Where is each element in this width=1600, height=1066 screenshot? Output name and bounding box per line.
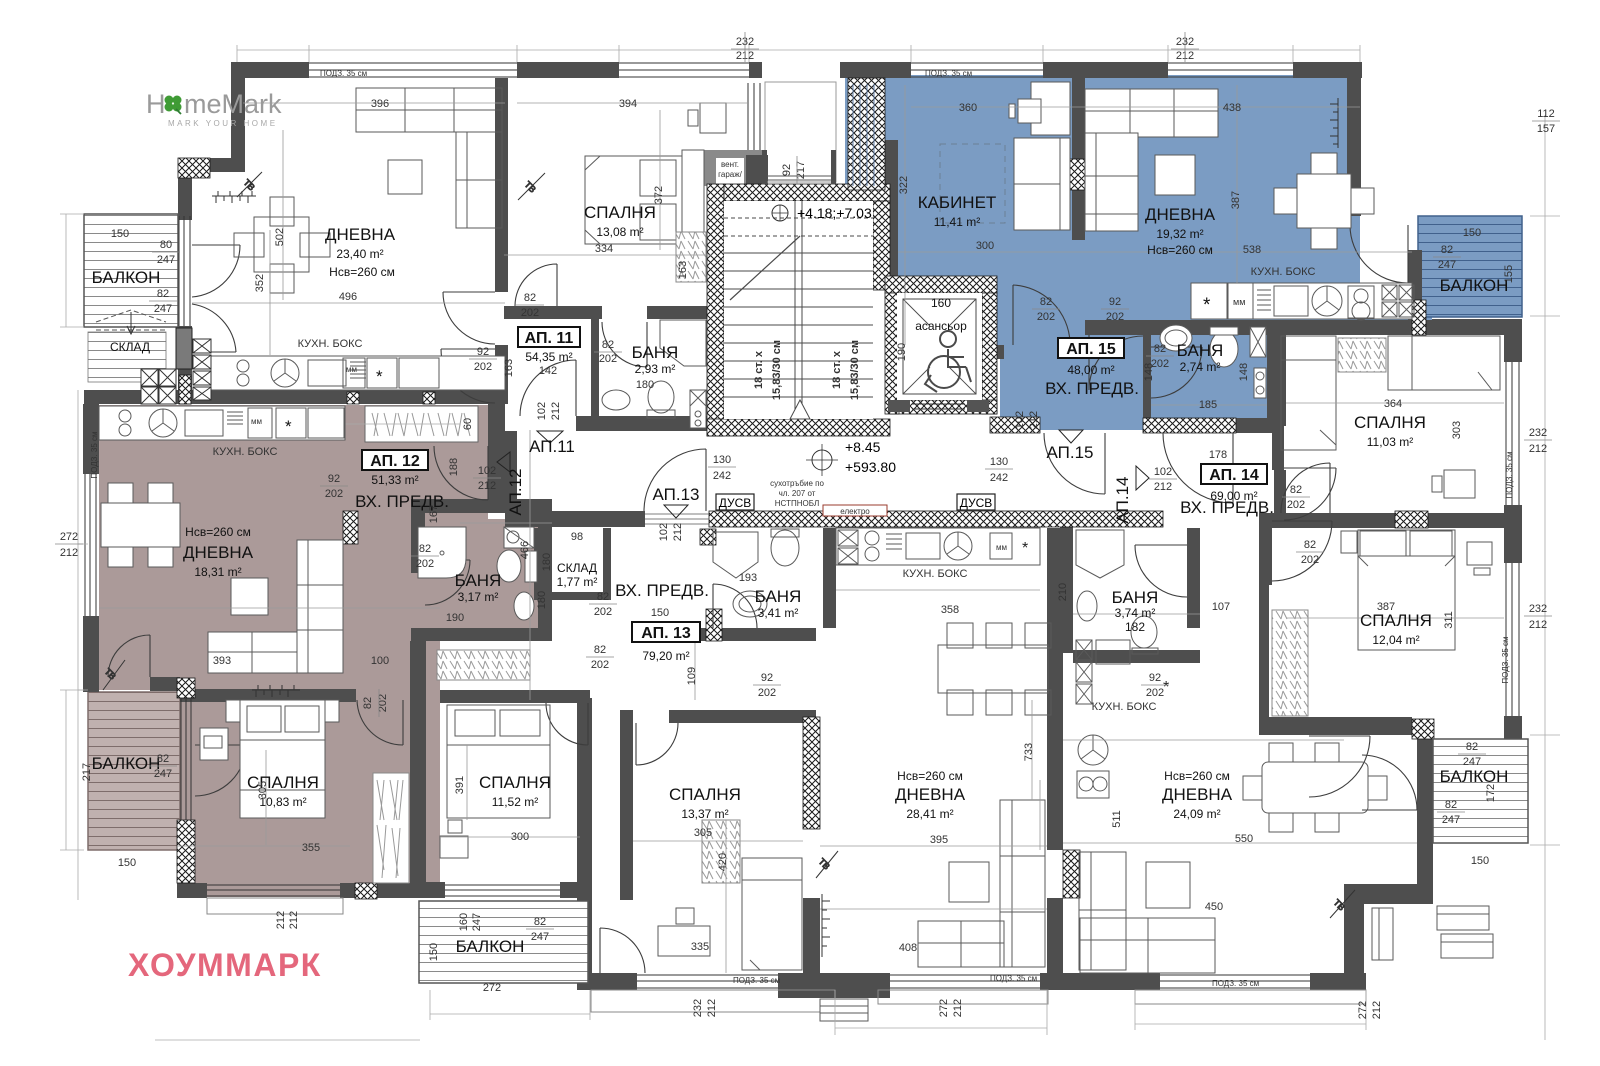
- svg-text:БАНЯ: БАНЯ: [632, 343, 679, 362]
- svg-text:13,08 m²: 13,08 m²: [596, 225, 643, 239]
- svg-text:18,31 m²: 18,31 m²: [194, 565, 241, 579]
- svg-text:109: 109: [686, 667, 698, 685]
- svg-text:АП.14: АП.14: [1113, 477, 1132, 524]
- svg-text:АП. 12: АП. 12: [370, 453, 420, 470]
- svg-text:466: 466: [519, 541, 531, 559]
- svg-text:мм: мм: [251, 417, 262, 426]
- svg-text:202: 202: [599, 353, 617, 365]
- svg-text:15,83/30 см: 15,83/30 см: [849, 340, 861, 400]
- svg-text:130: 130: [713, 454, 731, 466]
- svg-text:335: 335: [691, 941, 709, 953]
- svg-text:272: 272: [60, 531, 78, 543]
- svg-text:meMark: meMark: [184, 89, 282, 119]
- svg-text:247: 247: [1438, 259, 1456, 271]
- svg-text:150: 150: [1463, 227, 1481, 239]
- svg-text:3,41 m²: 3,41 m²: [758, 606, 799, 620]
- svg-text:247: 247: [1442, 814, 1460, 826]
- svg-text:92: 92: [761, 672, 773, 684]
- svg-text:182: 182: [1125, 620, 1145, 634]
- svg-text:242: 242: [990, 472, 1008, 484]
- svg-text:82: 82: [597, 591, 609, 603]
- svg-text:сухотръбие по: сухотръбие по: [770, 479, 824, 488]
- svg-text:450: 450: [1205, 901, 1223, 913]
- svg-text:193: 193: [739, 572, 757, 584]
- svg-text:438: 438: [1223, 102, 1241, 114]
- svg-text:18 ст. х: 18 ст. х: [831, 350, 843, 389]
- svg-text:202: 202: [758, 687, 776, 699]
- svg-text:190: 190: [896, 343, 908, 361]
- svg-text:322: 322: [898, 176, 910, 194]
- svg-text:СПАЛНЯ: СПАЛНЯ: [479, 773, 551, 792]
- svg-text:212: 212: [952, 999, 964, 1017]
- svg-text:502: 502: [274, 228, 286, 246]
- svg-text:185: 185: [1199, 399, 1217, 411]
- svg-text:212: 212: [1529, 443, 1547, 455]
- svg-text:мм: мм: [996, 543, 1007, 552]
- svg-text:150: 150: [651, 607, 669, 619]
- svg-text:ДНЕВНА: ДНЕВНА: [325, 225, 396, 244]
- svg-text:92: 92: [781, 164, 793, 176]
- svg-text:247: 247: [154, 303, 172, 315]
- svg-text:167: 167: [428, 505, 440, 523]
- svg-text:272: 272: [1357, 1001, 1369, 1019]
- svg-text:23,40 m²: 23,40 m²: [336, 247, 383, 261]
- svg-text:НСТПНОБЛ: НСТПНОБЛ: [775, 499, 819, 508]
- svg-text:82: 82: [1290, 484, 1302, 496]
- svg-text:ХОУММАРК: ХОУММАРК: [128, 947, 322, 983]
- svg-text:311: 311: [1443, 611, 1455, 629]
- svg-text:51,33 m²: 51,33 m²: [371, 473, 418, 487]
- svg-text:212: 212: [275, 911, 287, 929]
- svg-text:КУХН. БОКС: КУХН. БОКС: [213, 446, 278, 458]
- svg-text:212: 212: [288, 911, 300, 929]
- svg-text:202: 202: [325, 488, 343, 500]
- svg-text:202: 202: [1287, 499, 1305, 511]
- svg-text:150: 150: [118, 857, 136, 869]
- svg-text:107: 107: [1212, 601, 1230, 613]
- svg-text:електро: електро: [840, 507, 870, 516]
- svg-text:92: 92: [328, 473, 340, 485]
- svg-text:496: 496: [339, 291, 357, 303]
- svg-text:202: 202: [521, 307, 539, 319]
- svg-text:212: 212: [706, 999, 718, 1017]
- svg-text:172: 172: [1485, 784, 1497, 802]
- svg-text:82: 82: [362, 697, 374, 709]
- svg-text:82: 82: [419, 543, 431, 555]
- svg-text:82: 82: [594, 644, 606, 656]
- svg-text:355: 355: [302, 842, 320, 854]
- svg-text:387: 387: [1377, 601, 1395, 613]
- svg-text:202: 202: [591, 659, 609, 671]
- svg-text:142: 142: [539, 365, 557, 377]
- svg-text:79,20 m²: 79,20 m²: [642, 649, 689, 663]
- svg-text:538: 538: [1243, 244, 1261, 256]
- svg-text:393: 393: [213, 655, 231, 667]
- svg-text:СПАЛНЯ: СПАЛНЯ: [1354, 413, 1426, 432]
- svg-text:АП.15: АП.15: [1047, 443, 1094, 462]
- svg-text:155: 155: [1503, 265, 1515, 283]
- svg-text:АП.12: АП.12: [506, 469, 525, 516]
- svg-text:212: 212: [550, 402, 562, 420]
- svg-text:202: 202: [1146, 687, 1164, 699]
- svg-text:11,03 m²: 11,03 m²: [1367, 435, 1413, 449]
- svg-text:82: 82: [1441, 244, 1453, 256]
- svg-text:ПОДЗ. 35 см: ПОДЗ. 35 см: [990, 974, 1037, 983]
- svg-text:190: 190: [446, 612, 464, 624]
- svg-text:АП. 13: АП. 13: [641, 625, 691, 642]
- svg-text:БАЛКОН: БАЛКОН: [1440, 767, 1509, 786]
- svg-text:СКЛАД: СКЛАД: [110, 340, 150, 354]
- svg-text:82: 82: [602, 339, 614, 351]
- svg-text:202: 202: [1106, 311, 1124, 323]
- svg-text:+8.45: +8.45: [845, 439, 881, 455]
- svg-text:247: 247: [157, 254, 175, 266]
- svg-text:242: 242: [713, 470, 731, 482]
- svg-text:92: 92: [477, 346, 489, 358]
- svg-text:212: 212: [1371, 1001, 1383, 1019]
- svg-text:247: 247: [1463, 756, 1481, 768]
- svg-text:82: 82: [157, 753, 169, 765]
- svg-text:82: 82: [524, 292, 536, 304]
- svg-text:247: 247: [154, 768, 172, 780]
- svg-text:102: 102: [658, 523, 670, 541]
- svg-text:511: 511: [1111, 810, 1123, 828]
- svg-text:КАБИНЕТ: КАБИНЕТ: [918, 193, 997, 212]
- svg-text:202: 202: [416, 558, 434, 570]
- svg-text:ДУСВ: ДУСВ: [719, 496, 752, 510]
- svg-text:98: 98: [571, 531, 583, 543]
- svg-text:82: 82: [534, 916, 546, 928]
- svg-text:СПАЛНЯ: СПАЛНЯ: [584, 203, 656, 222]
- svg-text:СКЛАД: СКЛАД: [557, 561, 597, 575]
- svg-text:БАЛКОН: БАЛКОН: [92, 268, 161, 287]
- svg-text:82: 82: [1154, 343, 1166, 355]
- svg-text:КУХН. БОКС: КУХН. БОКС: [903, 568, 968, 580]
- svg-text:100: 100: [371, 655, 389, 667]
- svg-text:550: 550: [1235, 833, 1253, 845]
- svg-text:217: 217: [81, 763, 93, 781]
- svg-text:358: 358: [941, 604, 959, 616]
- svg-text:вент.: вент.: [721, 160, 739, 169]
- svg-text:82: 82: [1445, 799, 1457, 811]
- svg-text:3,17 m²: 3,17 m²: [458, 590, 499, 604]
- svg-text:АП. 15: АП. 15: [1066, 341, 1116, 358]
- svg-text:210: 210: [1057, 583, 1069, 601]
- svg-text:*: *: [1203, 295, 1211, 316]
- svg-text:150: 150: [428, 943, 440, 961]
- svg-text:160: 160: [931, 296, 951, 310]
- svg-text:92: 92: [1109, 296, 1121, 308]
- svg-text:Нсв=260 см: Нсв=260 см: [897, 769, 963, 783]
- svg-text:АП. 14: АП. 14: [1209, 467, 1259, 484]
- svg-text:*: *: [285, 417, 292, 436]
- svg-text:ВХ. ПРЕДВ.: ВХ. ПРЕДВ.: [615, 581, 709, 600]
- svg-text:ВХ. ПРЕДВ.: ВХ. ПРЕДВ.: [1045, 379, 1139, 398]
- svg-text:*: *: [376, 367, 383, 386]
- svg-text:150: 150: [1471, 855, 1489, 867]
- svg-text:24,09 m²: 24,09 m²: [1173, 807, 1220, 821]
- svg-text:28,41 m²: 28,41 m²: [906, 807, 953, 821]
- svg-text:СПАЛНЯ: СПАЛНЯ: [1360, 611, 1432, 630]
- svg-text:АП.11: АП.11: [529, 437, 575, 456]
- svg-text:2,74 m²: 2,74 m²: [1180, 360, 1221, 374]
- svg-text:гараж/: гараж/: [718, 170, 742, 179]
- svg-text:212: 212: [672, 523, 684, 541]
- svg-text:Нсв=260 см: Нсв=260 см: [329, 265, 395, 279]
- svg-text:ПОДЗ. 35 см: ПОДЗ. 35 см: [1505, 451, 1514, 498]
- svg-text:асансьор: асансьор: [915, 319, 967, 333]
- svg-text:272: 272: [483, 982, 501, 994]
- svg-text:212: 212: [1154, 481, 1172, 493]
- svg-text:394: 394: [619, 98, 637, 110]
- svg-text:БАЛКОН: БАЛКОН: [92, 754, 161, 773]
- svg-text:82: 82: [1466, 741, 1478, 753]
- svg-text:300: 300: [511, 831, 529, 843]
- svg-text:92: 92: [1149, 672, 1161, 684]
- svg-text:БАНЯ: БАНЯ: [755, 587, 802, 606]
- svg-text:АП. 11: АП. 11: [525, 330, 574, 347]
- svg-text:247: 247: [531, 931, 549, 943]
- svg-text:272: 272: [938, 999, 950, 1017]
- svg-text:180: 180: [541, 553, 553, 571]
- svg-text:212: 212: [478, 480, 496, 492]
- svg-text:MARK YOUR HOME: MARK YOUR HOME: [168, 119, 278, 128]
- svg-text:мм: мм: [1233, 297, 1245, 307]
- svg-text:ПОДЗ. 35 см: ПОДЗ. 35 см: [733, 976, 780, 985]
- svg-text:102: 102: [478, 465, 496, 477]
- svg-text:11,52 m²: 11,52 m²: [492, 795, 538, 809]
- svg-text:364: 364: [1384, 398, 1402, 410]
- svg-text:ПОДЗ. 35 см: ПОДЗ. 35 см: [90, 431, 99, 478]
- svg-text:305: 305: [257, 781, 269, 799]
- svg-text:408: 408: [899, 942, 917, 954]
- svg-text:102: 102: [1014, 411, 1026, 429]
- svg-text:54,35 m²: 54,35 m²: [525, 350, 572, 364]
- svg-text:H: H: [146, 89, 166, 119]
- svg-text:12,04 m²: 12,04 m²: [1372, 633, 1419, 647]
- svg-text:305: 305: [694, 827, 712, 839]
- svg-text:733: 733: [1023, 743, 1035, 761]
- svg-text:212: 212: [1028, 411, 1040, 429]
- svg-text:212: 212: [1529, 619, 1547, 631]
- svg-text:202: 202: [1037, 311, 1055, 323]
- svg-text:352: 352: [254, 274, 266, 292]
- svg-text:102: 102: [1154, 466, 1172, 478]
- svg-text:420: 420: [717, 853, 729, 871]
- svg-text:148: 148: [1238, 363, 1250, 381]
- svg-text:60: 60: [462, 418, 474, 430]
- svg-text:3,74 m²: 3,74 m²: [1115, 606, 1156, 620]
- svg-text:чл. 207 от: чл. 207 от: [779, 489, 816, 498]
- svg-text:48,00 m²: 48,00 m²: [1067, 363, 1114, 377]
- svg-text:ДНЕВНА: ДНЕВНА: [1162, 785, 1233, 804]
- svg-text:ПОДЗ. 35 см: ПОДЗ. 35 см: [320, 69, 367, 78]
- svg-text:232: 232: [1529, 427, 1547, 439]
- svg-text:130: 130: [990, 456, 1008, 468]
- svg-text:ДНЕВНА: ДНЕВНА: [895, 785, 966, 804]
- svg-text:82: 82: [1040, 296, 1052, 308]
- svg-text:СПАЛНЯ: СПАЛНЯ: [669, 785, 741, 804]
- svg-text:ПОДЗ. 35 см: ПОДЗ. 35 см: [925, 69, 972, 78]
- svg-text:БАЛКОН: БАЛКОН: [1440, 276, 1509, 295]
- svg-text:мм: мм: [346, 365, 357, 374]
- svg-text:69,00 m²: 69,00 m²: [1210, 489, 1257, 503]
- svg-text:163: 163: [677, 261, 689, 279]
- svg-text:163: 163: [503, 359, 515, 377]
- svg-text:360: 360: [959, 102, 977, 114]
- svg-text:13,37 m²: 13,37 m²: [681, 807, 728, 821]
- svg-text:+593.80: +593.80: [845, 459, 896, 475]
- svg-text:ДНЕВНА: ДНЕВНА: [183, 543, 254, 562]
- svg-text:102: 102: [536, 402, 548, 420]
- svg-text:82: 82: [1304, 539, 1316, 551]
- svg-text:15,83/30 см: 15,83/30 см: [771, 340, 783, 400]
- svg-text:334: 334: [595, 243, 613, 255]
- svg-text:112: 112: [1537, 108, 1555, 120]
- svg-text:*: *: [1022, 540, 1028, 557]
- svg-text:1,77 m²: 1,77 m²: [557, 575, 598, 589]
- svg-text:247: 247: [471, 913, 483, 931]
- svg-text:232: 232: [692, 999, 704, 1017]
- svg-text:КУХН. БОКС: КУХН. БОКС: [1251, 266, 1316, 278]
- svg-text:303: 303: [1451, 421, 1463, 439]
- svg-text:БАНЯ: БАНЯ: [1112, 588, 1159, 607]
- svg-text:387: 387: [1230, 191, 1242, 209]
- svg-text:202: 202: [594, 606, 612, 618]
- svg-text:180: 180: [536, 591, 548, 609]
- svg-text:Нсв=260 см: Нсв=260 см: [185, 525, 251, 539]
- svg-text:2,93 m²: 2,93 m²: [635, 362, 676, 376]
- svg-text:212: 212: [60, 547, 78, 559]
- svg-text:БАНЯ: БАНЯ: [455, 571, 502, 590]
- svg-text:178: 178: [1209, 449, 1227, 461]
- svg-text:+4.18;+7.03: +4.18;+7.03: [797, 205, 872, 221]
- svg-text:ДУСВ: ДУСВ: [960, 496, 993, 510]
- svg-text:Нсв=260 см: Нсв=260 см: [1147, 243, 1213, 257]
- svg-text:202: 202: [1301, 554, 1319, 566]
- svg-text:180: 180: [636, 379, 654, 391]
- svg-text:18 ст. х: 18 ст. х: [753, 350, 765, 389]
- svg-text:202: 202: [474, 361, 492, 373]
- svg-text:396: 396: [371, 98, 389, 110]
- svg-text:188: 188: [448, 458, 460, 476]
- svg-text:391: 391: [454, 776, 466, 794]
- svg-text:КУХН. БОКС: КУХН. БОКС: [1092, 701, 1157, 713]
- svg-text:300: 300: [976, 240, 994, 252]
- svg-text:БАНЯ: БАНЯ: [1177, 341, 1224, 360]
- svg-text:150: 150: [111, 228, 129, 240]
- svg-text:372: 372: [653, 186, 665, 204]
- svg-text:АП.13: АП.13: [653, 485, 700, 504]
- svg-text:Нсв=260 см: Нсв=260 см: [1164, 769, 1230, 783]
- svg-text:11,41 m²: 11,41 m²: [934, 215, 980, 229]
- svg-text:ДНЕВНА: ДНЕВНА: [1145, 205, 1216, 224]
- svg-text:82: 82: [157, 288, 169, 300]
- svg-text:ПОДЗ. 35 см: ПОДЗ. 35 см: [1501, 636, 1510, 683]
- svg-text:19,32 m²: 19,32 m²: [1156, 227, 1203, 241]
- svg-text:КУХН. БОКС: КУХН. БОКС: [298, 338, 363, 350]
- svg-text:БАЛКОН: БАЛКОН: [456, 937, 525, 956]
- svg-text:157: 157: [1537, 123, 1555, 135]
- svg-text:232: 232: [1529, 603, 1547, 615]
- svg-text:80: 80: [160, 239, 172, 251]
- svg-text:395: 395: [930, 834, 948, 846]
- svg-text:ПОДЗ. 35 см: ПОДЗ. 35 см: [1212, 979, 1259, 988]
- svg-text:160: 160: [458, 913, 470, 931]
- svg-text:202: 202: [1151, 358, 1169, 370]
